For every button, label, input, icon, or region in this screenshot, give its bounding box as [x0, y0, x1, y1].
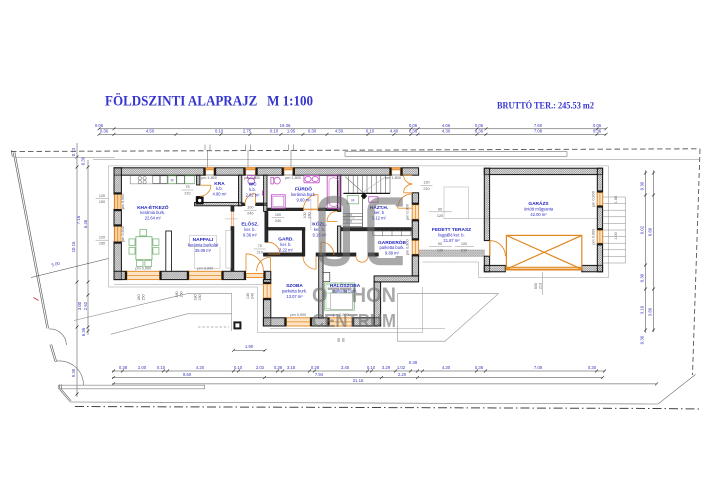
svg-text:0.30: 0.30	[588, 365, 597, 370]
svg-text:500: 500	[534, 283, 538, 289]
svg-text:0.10: 0.10	[157, 365, 166, 370]
svg-text:fagyálló ker. b.: fagyálló ker. b.	[438, 233, 464, 238]
svg-text:4.40: 4.40	[390, 129, 399, 134]
svg-text:0.28: 0.28	[311, 365, 320, 370]
svg-text:4.06: 4.06	[442, 123, 451, 128]
svg-text:240: 240	[308, 212, 312, 218]
svg-text:4.30: 4.30	[442, 129, 451, 134]
svg-text:75: 75	[185, 185, 189, 189]
svg-text:31.16: 31.16	[353, 378, 364, 383]
svg-text:210: 210	[423, 187, 429, 191]
svg-text:210: 210	[461, 249, 467, 253]
svg-text:0.38: 0.38	[119, 365, 128, 370]
svg-text:2.02: 2.02	[256, 365, 265, 370]
svg-text:BRUTTÓ TER.: 245.53 m2: BRUTTÓ TER.: 245.53 m2	[497, 101, 594, 111]
svg-text:pm 1,800: pm 1,800	[285, 176, 301, 180]
svg-text:2.75: 2.75	[243, 129, 252, 134]
svg-text:pm 0,900: pm 0,900	[406, 239, 410, 255]
svg-text:0.10: 0.10	[367, 365, 376, 370]
svg-text:3.29: 3.29	[382, 365, 391, 370]
svg-text:0.30: 0.30	[640, 181, 645, 190]
svg-text:0.10: 0.10	[270, 129, 279, 134]
svg-text:0.36: 0.36	[409, 129, 418, 134]
svg-text:pm 0,800: pm 0,800	[244, 176, 260, 180]
svg-text:240: 240	[275, 219, 281, 223]
svg-text:2.62: 2.62	[83, 301, 88, 310]
svg-text:OTTHON: OTTHON	[312, 284, 396, 307]
svg-text:k.b.: k.b.	[249, 187, 256, 192]
svg-text:FÖLDSZINTI ALAPRAJZ M 1:100: FÖLDSZINTI ALAPRAJZ M 1:100	[105, 93, 313, 110]
svg-text:9.36 m²: 9.36 m²	[243, 232, 258, 237]
svg-text:0.10: 0.10	[234, 365, 243, 370]
svg-text:100: 100	[303, 212, 307, 218]
svg-text:100: 100	[247, 205, 253, 209]
svg-text:0.36: 0.36	[475, 365, 484, 370]
svg-text:ker. b: ker. b	[374, 210, 385, 215]
svg-text:3.15: 3.15	[287, 365, 296, 370]
svg-text:90: 90	[337, 338, 341, 342]
svg-text:6.46: 6.46	[83, 219, 88, 228]
svg-text:9.39: 9.39	[71, 368, 76, 377]
svg-text:1.02: 1.02	[397, 365, 406, 370]
svg-text:7.08: 7.08	[534, 365, 543, 370]
svg-text:M: M	[171, 178, 174, 182]
svg-text:0.30: 0.30	[640, 273, 645, 282]
svg-text:42.00 m²: 42.00 m²	[530, 212, 547, 217]
svg-text:0.06: 0.06	[95, 123, 104, 128]
svg-text:3.16: 3.16	[640, 305, 645, 314]
svg-text:3.22 m²: 3.22 m²	[279, 247, 294, 252]
svg-text:pm 0,900: pm 0,900	[135, 267, 151, 271]
svg-text:120: 120	[437, 249, 443, 253]
svg-text:1.95: 1.95	[287, 129, 296, 134]
svg-text:210: 210	[184, 191, 190, 195]
svg-text:1.00: 1.00	[614, 232, 618, 239]
svg-text:parketta burk.: parketta burk.	[282, 289, 307, 294]
svg-text:4.90 m²: 4.90 m²	[213, 192, 228, 197]
svg-text:3.45: 3.45	[341, 365, 350, 370]
svg-text:7.94: 7.94	[315, 372, 324, 377]
svg-text:0.36: 0.36	[475, 129, 484, 134]
svg-text:1.86: 1.86	[614, 196, 618, 203]
svg-text:7.16: 7.16	[76, 215, 81, 224]
svg-text:k.b.: k.b.	[216, 186, 223, 191]
svg-text:22.64 m²: 22.64 m²	[145, 216, 162, 221]
svg-text:150: 150	[180, 291, 184, 297]
svg-text:0.06: 0.06	[593, 123, 602, 128]
svg-text:9.89 m²: 9.89 m²	[385, 251, 400, 256]
svg-text:6.60: 6.60	[648, 227, 653, 236]
svg-text:parketta burk.: parketta burk.	[379, 245, 404, 250]
svg-text:4.50: 4.50	[335, 129, 344, 134]
svg-text:0.06: 0.06	[409, 123, 418, 128]
svg-text:pm 0,900: pm 0,900	[406, 204, 410, 220]
svg-text:213: 213	[538, 283, 542, 289]
svg-text:CENTRUM: CENTRUM	[312, 310, 396, 331]
svg-text:90: 90	[438, 242, 442, 246]
svg-text:90: 90	[438, 208, 442, 212]
svg-text:0.06: 0.06	[475, 123, 484, 128]
svg-text:19.36: 19.36	[280, 123, 291, 128]
svg-text:pm 0,900: pm 0,900	[592, 191, 596, 207]
svg-text:9.00 m²: 9.00 m²	[297, 197, 312, 202]
svg-text:90: 90	[341, 338, 345, 342]
svg-text:pm 0,900: pm 0,900	[197, 267, 213, 271]
svg-text:130: 130	[246, 293, 250, 299]
svg-text:210: 210	[257, 250, 263, 254]
svg-text:1.90: 1.90	[245, 344, 254, 349]
svg-text:75: 75	[258, 244, 262, 248]
svg-text:0.36: 0.36	[640, 335, 645, 344]
svg-text:120: 120	[437, 214, 443, 218]
svg-text:6.36: 6.36	[81, 327, 86, 336]
svg-text:4.20: 4.20	[196, 365, 205, 370]
svg-text:ker. b.: ker. b.	[280, 242, 291, 247]
svg-text:0.30: 0.30	[308, 129, 317, 134]
svg-text:pm 0,900: pm 0,900	[121, 194, 125, 210]
svg-text:ker. b.: ker. b.	[244, 227, 255, 232]
svg-text:240: 240	[247, 212, 253, 216]
svg-text:7.60: 7.60	[534, 123, 543, 128]
svg-text:150: 150	[198, 294, 202, 300]
svg-text:0.38: 0.38	[274, 365, 283, 370]
svg-text:pm 0,900: pm 0,900	[121, 226, 125, 242]
svg-text:150: 150	[99, 242, 105, 246]
svg-text:2.00: 2.00	[138, 365, 147, 370]
svg-text:120: 120	[99, 236, 105, 240]
svg-text:7.08: 7.08	[534, 129, 543, 134]
svg-text:240: 240	[251, 293, 255, 299]
svg-text:kerámia burkolat: kerámia burkolat	[188, 243, 219, 248]
svg-text:13.07 m²: 13.07 m²	[286, 294, 303, 299]
svg-text:4.50: 4.50	[146, 129, 155, 134]
svg-text:120: 120	[423, 181, 429, 185]
svg-text:0.38: 0.38	[409, 360, 418, 365]
svg-text:9.60: 9.60	[183, 372, 192, 377]
svg-text:pm 1,800: pm 1,800	[385, 176, 401, 180]
svg-text:35.09 m²: 35.09 m²	[195, 248, 212, 253]
svg-text:pm 0,900: pm 0,900	[592, 229, 596, 245]
svg-text:0.10: 0.10	[366, 129, 375, 134]
svg-text:150: 150	[142, 294, 146, 300]
svg-text:120: 120	[99, 194, 105, 198]
svg-text:3.86: 3.86	[648, 307, 653, 316]
svg-text:3.00: 3.00	[77, 301, 82, 310]
svg-text:2.20: 2.20	[398, 372, 407, 377]
svg-text:pm 0,900: pm 0,900	[290, 313, 306, 317]
svg-text:kerámia burk.: kerámia burk.	[291, 192, 316, 197]
svg-text:kerámia burk.: kerámia burk.	[140, 210, 165, 215]
svg-text:10.16: 10.16	[71, 241, 76, 252]
svg-text:100: 100	[275, 213, 281, 217]
svg-text:180: 180	[194, 294, 198, 300]
svg-text:4.30: 4.30	[442, 365, 451, 370]
svg-text:180: 180	[175, 291, 179, 297]
svg-text:0.10: 0.10	[215, 129, 224, 134]
svg-text:100: 100	[461, 242, 467, 246]
svg-text:pm 1,800: pm 1,800	[201, 176, 217, 180]
svg-text:2.02 m²: 2.02 m²	[246, 192, 261, 197]
svg-text:6.02: 6.02	[640, 225, 645, 234]
svg-text:0.36: 0.36	[593, 129, 602, 134]
svg-text:180: 180	[137, 294, 141, 300]
svg-text:150: 150	[99, 200, 105, 204]
svg-text:öntött műgyanta: öntött műgyanta	[524, 207, 554, 212]
svg-text:M: M	[351, 199, 354, 203]
svg-text:21.87 m²: 21.87 m²	[443, 238, 460, 243]
svg-text:0.36: 0.36	[100, 129, 109, 134]
